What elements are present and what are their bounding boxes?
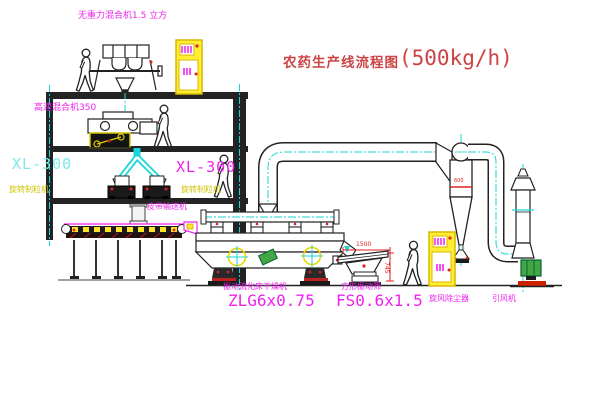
stack-base-cone bbox=[512, 243, 534, 258]
flow-diagram-canvas: 农药生产线流程图 (500kg/h) 无重力混合机1.5 立方 高速混合机350… bbox=[0, 0, 600, 403]
dryer-leg-right bbox=[300, 268, 330, 285]
dryer-exhaust-duct bbox=[259, 143, 452, 214]
fluid-bed-dryer bbox=[196, 210, 356, 285]
cabinet1-red-lamp bbox=[195, 44, 198, 47]
fan-base bbox=[518, 281, 546, 286]
label-sieve-name: 方形振动筛 bbox=[341, 283, 381, 291]
label-sieve-model: FS0.6x1.5 bbox=[336, 293, 423, 309]
gravity-free-mixer bbox=[84, 45, 162, 112]
label-granulator-right: 旋转制粒机 bbox=[181, 186, 221, 194]
pile-feet bbox=[70, 276, 181, 279]
conveyor-pulley-left bbox=[62, 225, 71, 234]
annotation-cyclone-size: 600 bbox=[454, 179, 464, 184]
stack-cap-top bbox=[518, 169, 528, 176]
sieve-mount bbox=[354, 272, 376, 276]
diagram-title: 农药生产线流程图 (500kg/h) bbox=[283, 46, 513, 71]
granulator-left-unit bbox=[108, 176, 135, 199]
discharge-pipe bbox=[130, 204, 147, 224]
second-floor-slab bbox=[46, 146, 248, 152]
cabinet1-red-lamp2 bbox=[195, 73, 198, 76]
control-cabinet-2 bbox=[429, 232, 455, 286]
label-granulator-left: 旋转制粒机 bbox=[9, 186, 49, 194]
annotation-dim-745: 745 bbox=[383, 262, 389, 273]
cabinet2-red-lamp bbox=[448, 236, 451, 239]
dryer-connectors bbox=[211, 222, 333, 233]
label-xl300-right: XL-300 bbox=[176, 160, 236, 175]
induced-draft-fan bbox=[510, 260, 554, 287]
roof-slab bbox=[46, 92, 248, 99]
control-cabinet-1 bbox=[176, 40, 202, 94]
stack-body bbox=[516, 190, 530, 243]
high-speed-mixer bbox=[88, 112, 166, 148]
label-dryer-model: ZLG6x0.75 bbox=[228, 293, 315, 309]
dryer-body-rim bbox=[196, 233, 344, 241]
stack-rain-cap bbox=[511, 178, 535, 190]
label-gravity-mixer: 无重力混合机1.5 立方 bbox=[78, 12, 167, 21]
label-belt-conveyor: 皮带输送机 bbox=[147, 203, 187, 211]
label-high-speed-mixer: 高速混合机350 bbox=[34, 104, 96, 113]
cyclone-outlet-pipe bbox=[468, 152, 518, 254]
person-ground bbox=[403, 241, 421, 285]
label-fan: 引风机 bbox=[492, 295, 516, 303]
label-cyclone: 旋风除尘器 bbox=[429, 295, 469, 303]
annotation-dim-1500: 1500 bbox=[356, 242, 371, 248]
fan-housing bbox=[521, 260, 541, 276]
cabinet2-red-lamp2 bbox=[448, 269, 451, 272]
dryer-feed-hopper bbox=[184, 222, 197, 234]
title-capacity: (500kg/h) bbox=[399, 46, 513, 70]
foundation-piles bbox=[74, 240, 176, 276]
label-xl300-left: XL-300 bbox=[12, 157, 72, 172]
belt-conveyor bbox=[62, 224, 187, 238]
label-dryer-name: 振动流化床干燥机 bbox=[223, 283, 287, 291]
title-chinese: 农药生产线流程图 bbox=[283, 46, 399, 71]
